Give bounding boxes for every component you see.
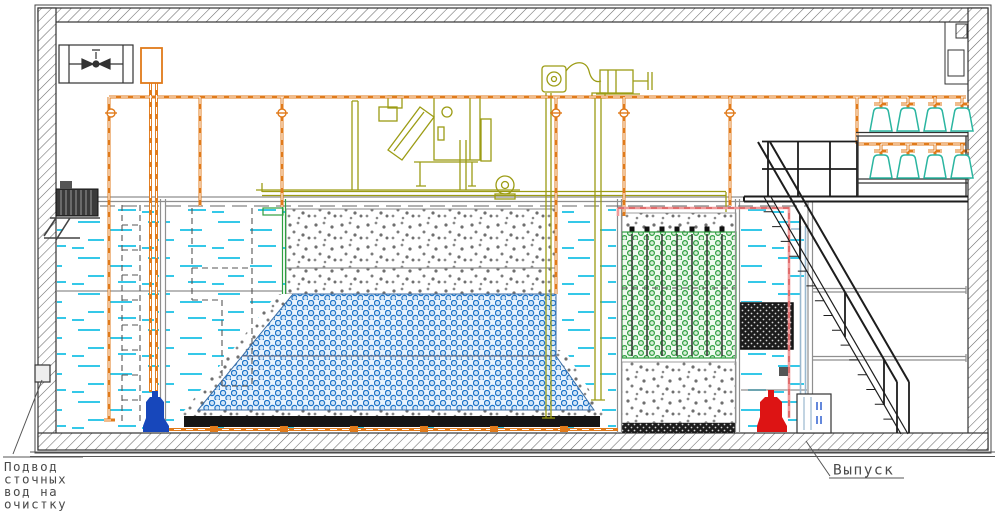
- tank3-right-wall: [736, 199, 740, 433]
- blower-drops-row2: [881, 144, 962, 173]
- screen-machine: [256, 96, 726, 212]
- fan-stub: [92, 50, 100, 59]
- drive-cable: [566, 63, 601, 82]
- tank1-2-divider: [161, 199, 166, 433]
- drive-motor: [547, 72, 561, 86]
- air-blower-2: [897, 108, 919, 131]
- screen-ribs: [61, 190, 91, 215]
- gearbox-details: [596, 70, 652, 94]
- screen-basket: [56, 189, 98, 216]
- floor-slab-hatch: [38, 433, 988, 450]
- exhaust-duct: [945, 22, 968, 84]
- drive-motor-hub: [552, 77, 557, 82]
- tank4-water-upper: [741, 209, 807, 302]
- floating-media-layer: [286, 209, 556, 294]
- outlet-chamber-box: [797, 394, 831, 433]
- right-wall-hatch: [968, 8, 988, 450]
- crosshatch-block: [740, 303, 793, 349]
- tank-top-edge: [56, 197, 744, 202]
- outlet-label: Выпуск: [833, 463, 894, 479]
- blower-drops-row1: [881, 97, 962, 126]
- air-blower-8: [951, 155, 973, 178]
- duct-grille: [948, 50, 964, 76]
- aeration-diffuser-band: [184, 416, 600, 427]
- inlet-label-line4: очистку: [4, 497, 67, 512]
- plant-section-drawing: Подвод сточных вод на очистку Выпуск: [0, 0, 1000, 512]
- drawing-canvas: Подвод сточных вод на очистку Выпуск: [0, 0, 1000, 512]
- ceiling-slab-hatch: [38, 8, 988, 22]
- air-blower-5: [870, 155, 892, 178]
- screen-cabinet: [434, 97, 480, 160]
- tank3-sludge-speckle: [622, 362, 736, 423]
- air-blower-3: [924, 108, 946, 131]
- blower-drops-row1: [881, 97, 962, 126]
- cabinet-latch: [438, 127, 444, 140]
- platform-deck: [744, 197, 968, 202]
- drive-motor-housing: [542, 66, 566, 92]
- inlet-wall-penetration: [35, 365, 50, 382]
- blower-drops-row2: [881, 144, 962, 173]
- air-blower-1: [870, 108, 892, 131]
- screen-motor: [60, 181, 72, 189]
- air-blower-6: [897, 155, 919, 178]
- feed-pump-hub: [502, 182, 509, 189]
- float-switch: [779, 367, 788, 376]
- cabinet-flange: [442, 107, 452, 117]
- dosing-tank: [141, 48, 162, 83]
- fan-hub-icon: [93, 61, 99, 67]
- air-blower-4: [951, 108, 973, 131]
- right-pipe-run-lower: [813, 354, 966, 362]
- support-columns: [352, 101, 466, 190]
- conveyor-head-box: [379, 107, 397, 121]
- tank3-left-wall: [618, 199, 622, 433]
- side-panel: [481, 119, 491, 161]
- right-pipe-run-upper: [813, 286, 966, 294]
- support-table: [414, 162, 478, 186]
- duct-anchor: [956, 24, 967, 38]
- green-media-block: [622, 232, 736, 358]
- inclined-screen-conveyor: [388, 107, 434, 160]
- railing-rails: [762, 142, 857, 170]
- air-blower-7: [924, 155, 946, 178]
- vent-fan-symbol: [59, 45, 133, 83]
- tank3-aeration-band: [622, 423, 736, 433]
